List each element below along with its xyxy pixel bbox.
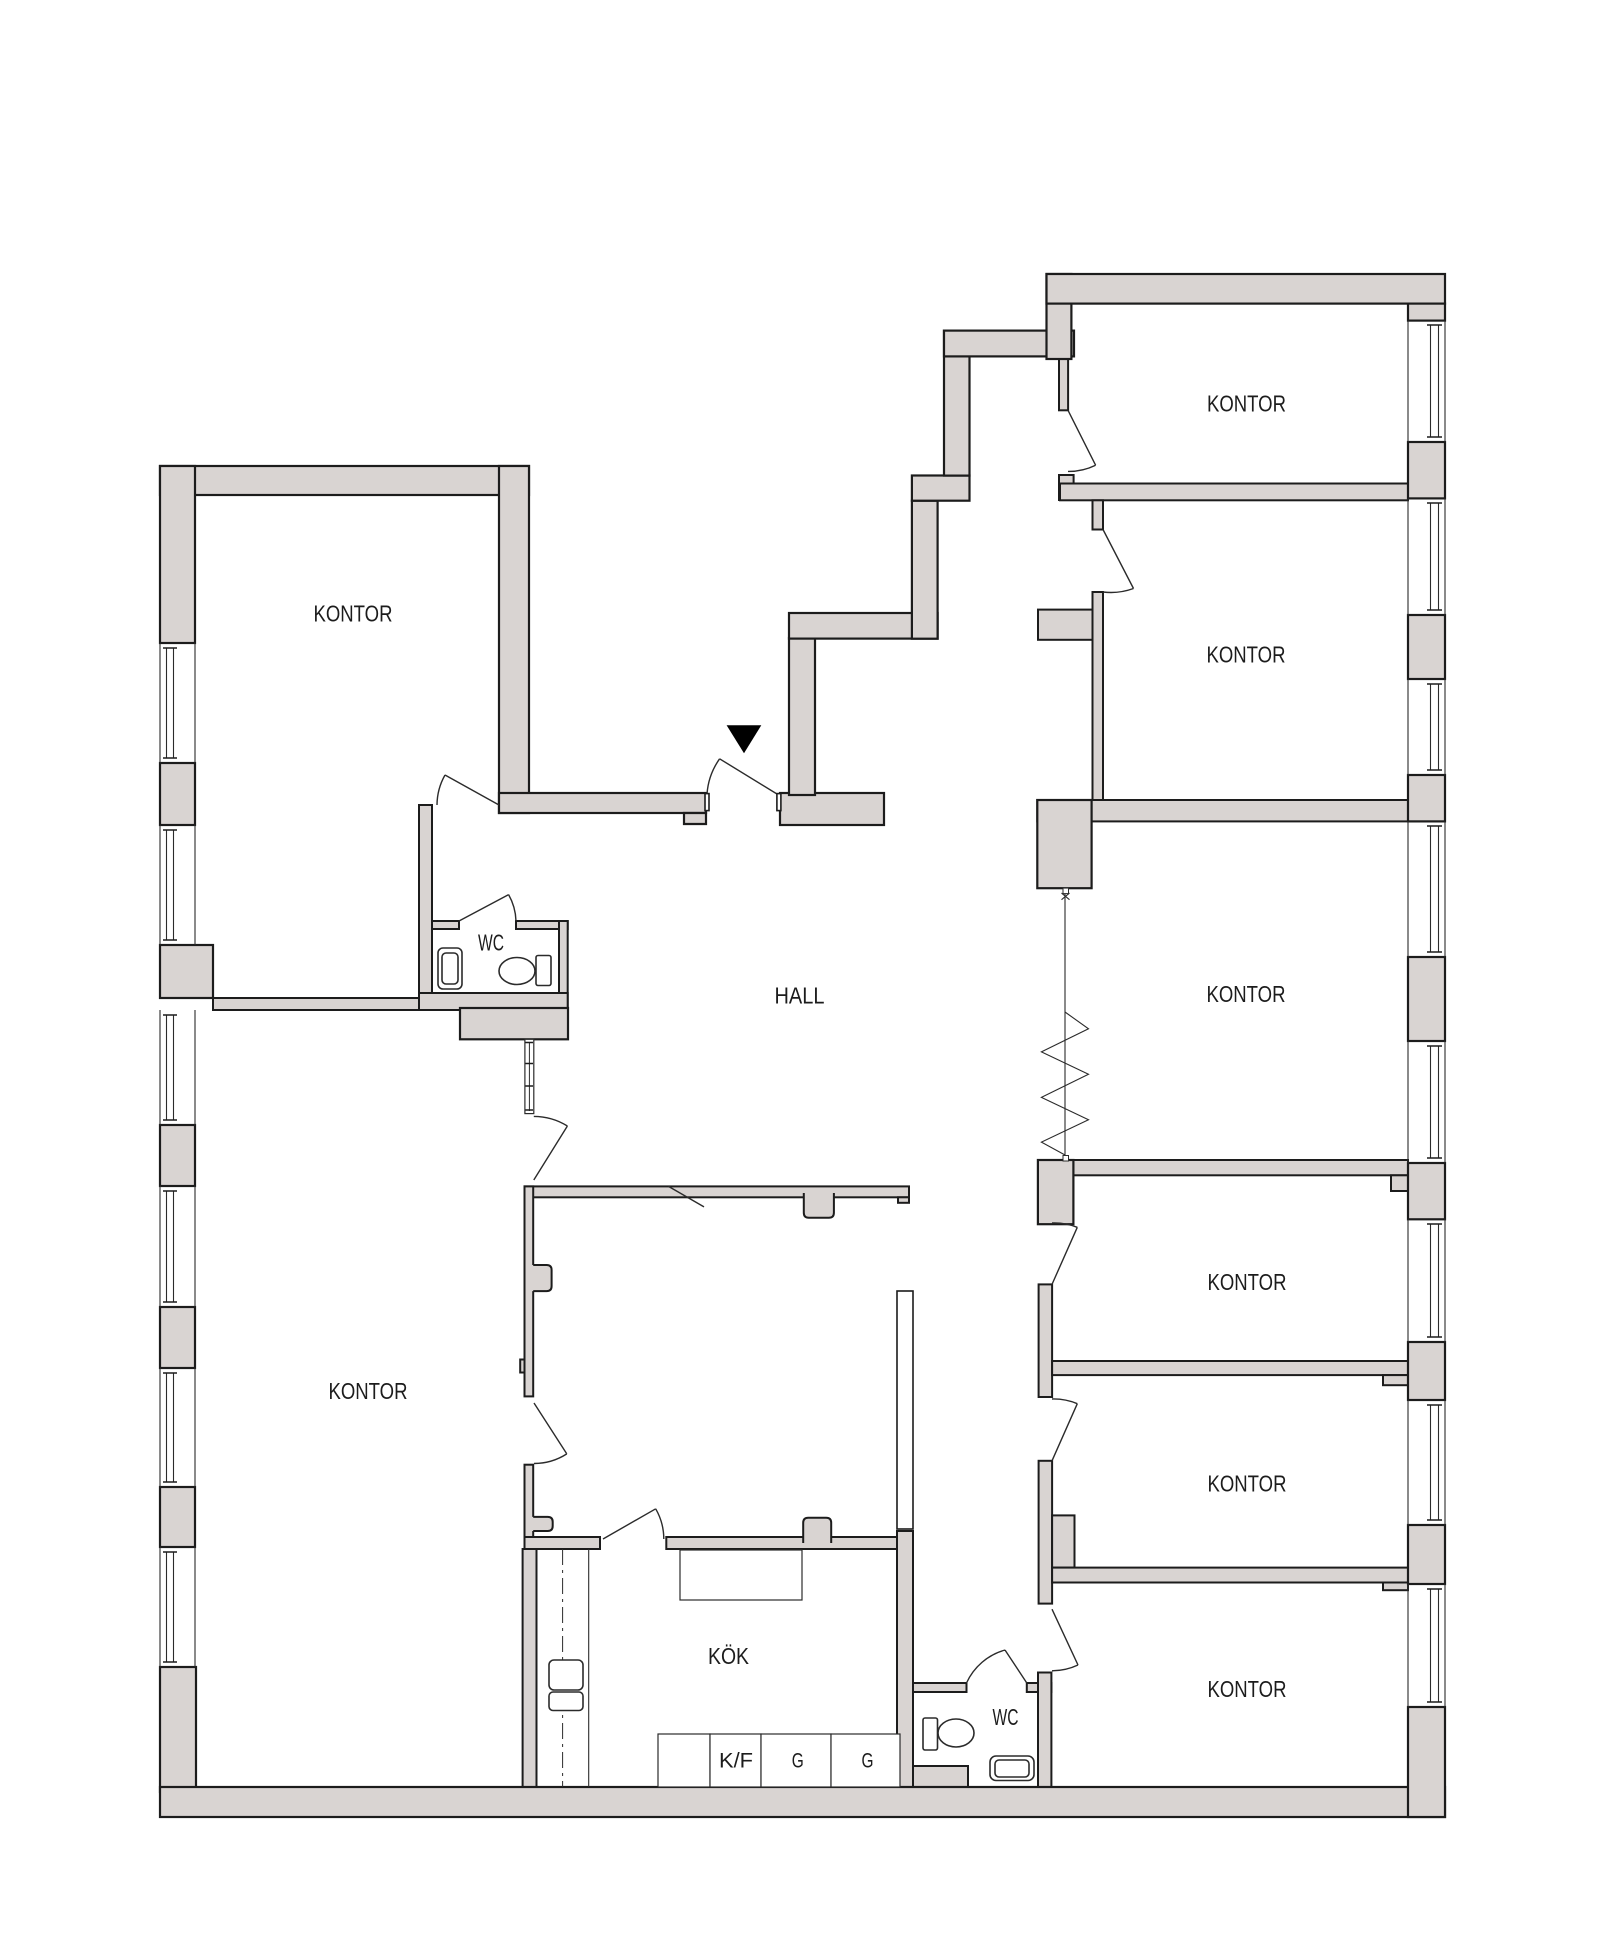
svg-text:G: G: [792, 1750, 804, 1773]
svg-text:KÖK: KÖK: [708, 1643, 749, 1669]
svg-text:K/F: K/F: [719, 1750, 753, 1773]
svg-text:WC: WC: [478, 930, 504, 956]
svg-text:WC: WC: [993, 1704, 1019, 1730]
svg-text:HALL: HALL: [775, 983, 825, 1009]
svg-text:KONTOR: KONTOR: [1207, 642, 1286, 668]
svg-text:KONTOR: KONTOR: [1207, 981, 1286, 1007]
svg-text:KONTOR: KONTOR: [1208, 1269, 1287, 1295]
svg-text:KONTOR: KONTOR: [1207, 391, 1286, 417]
svg-text:KONTOR: KONTOR: [1208, 1471, 1287, 1497]
svg-text:KONTOR: KONTOR: [329, 1378, 408, 1404]
svg-text:KONTOR: KONTOR: [314, 601, 393, 627]
svg-text:G: G: [862, 1750, 874, 1773]
svg-text:KONTOR: KONTOR: [1208, 1676, 1287, 1702]
